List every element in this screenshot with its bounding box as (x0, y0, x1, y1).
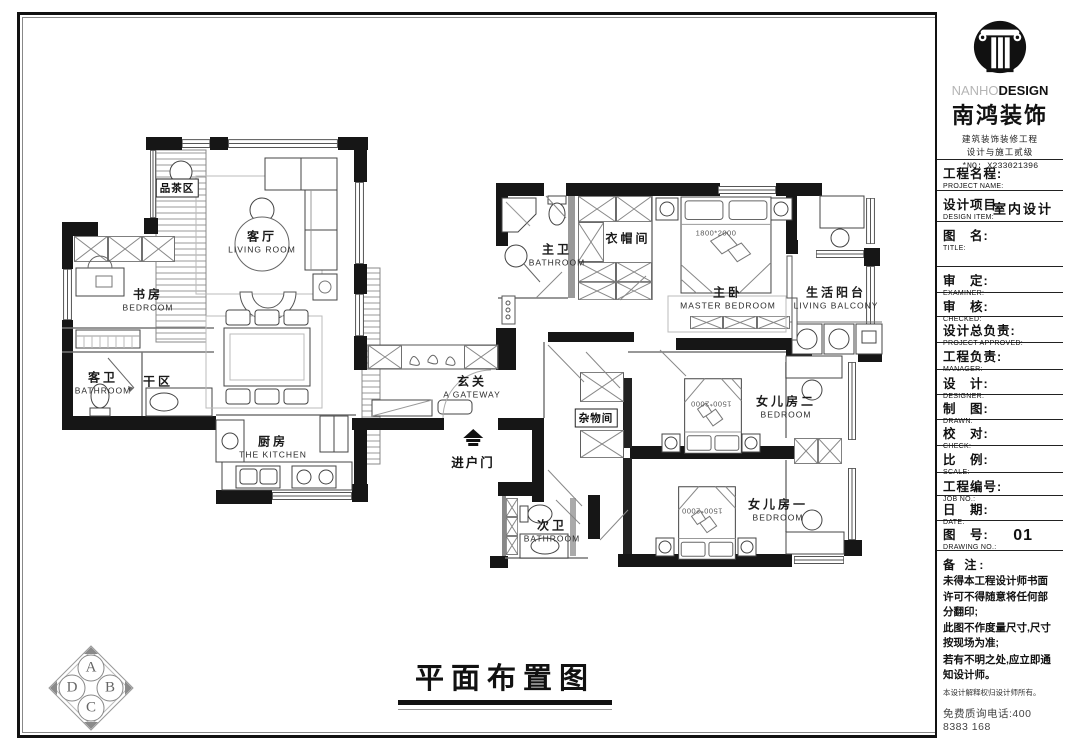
column-logo-icon (971, 18, 1029, 76)
room-label-master-bath: 主卫BATHROOM (529, 241, 585, 268)
drawing-sheet: { "sheet": { "drawing_title": "平面布置图", "… (0, 0, 1080, 756)
compass-letter-d: D (67, 680, 78, 697)
bed-size-label: 1500*2000 (691, 400, 732, 409)
entry-arrow-icon (462, 429, 484, 446)
room-label-girl-room-2: 女儿房二BEDROOM (756, 393, 816, 420)
entry-door-label: 进户门 (451, 452, 495, 471)
field-manager: 工程负责:MANAGER: (937, 343, 1063, 370)
room-label-storage: 杂物间 (575, 409, 618, 428)
room-label-guest-bath: 客卫BATHROOM (75, 369, 131, 396)
desk2 (786, 356, 842, 378)
compass-letter-c: C (86, 700, 96, 717)
drawing-title: 平面布置图 (398, 655, 612, 697)
room-label-girl-room-1: 女儿房一BEDROOM (748, 496, 808, 523)
field-check: 校 对:CHECK: (937, 420, 1063, 446)
field-job-no: 工程编号:JOB NO.: (937, 473, 1063, 496)
room-label-kitchen: 厨房THE KITCHEN (239, 433, 307, 460)
brand-en: NANHODESIGN (937, 83, 1063, 98)
dining-table (224, 310, 310, 404)
girl-bed-1 (679, 487, 736, 560)
utility-boxes (502, 296, 515, 324)
field-designer: 设 计:DESIGNER: (937, 370, 1063, 395)
nightstand (770, 198, 792, 220)
room-label-gateway: 玄关A GATEWAY (443, 373, 501, 400)
master-sink (505, 245, 527, 267)
washer-units (790, 322, 882, 354)
master-bed (681, 197, 771, 293)
field-project-approved: 设计总负责:PROJECT APPROVED: (937, 317, 1063, 343)
notes-disclaimer: 本设计解释权归设计师所有。 (943, 687, 1057, 698)
compass-letter-b: B (105, 680, 115, 697)
design-item-value: 室内设计 (993, 198, 1053, 217)
title-block: NANHODESIGN 南鸿装饰 建筑装饰装修工程设计与施工贰级 *NO: X2… (935, 12, 1063, 738)
entry-bench (372, 400, 472, 416)
room-label-tea-area: 品茶区 (156, 179, 199, 198)
desk-chair (831, 229, 849, 247)
field-examiner: 审 定:EXAMINER: (937, 267, 1063, 293)
notes-title: 备 注: (943, 556, 1057, 573)
master-toilet (548, 196, 566, 225)
field-design-item: 设计项目:DESIGN ITEM: 室内设计 (937, 191, 1063, 222)
bed-size-label: 1500*2000 (682, 507, 723, 516)
room-label-master-bedroom: 主卧MASTER BEDROOM (680, 284, 776, 311)
compass-graphic (38, 638, 144, 738)
room-label-study: 书房BEDROOM (123, 286, 174, 313)
notes-block: 备 注: 未得本工程设计师书面许可不得随意将任何部分翻印; 此图不作度量尺寸,尺… (937, 551, 1063, 738)
room-label-cloakroom: 衣帽间 (605, 230, 650, 247)
fridge (320, 416, 348, 452)
room-label-second-bath: 次卫BATHROOM (524, 517, 580, 544)
title-underline-thin (398, 709, 612, 710)
window-desk (820, 196, 864, 228)
study-cabinet (76, 330, 140, 348)
field-drawn: 制 图:DRAWN: (937, 395, 1063, 420)
corner-table (313, 274, 337, 300)
note-line: 若有不明之处,应立即通知设计师。 (943, 653, 1057, 683)
field-checked: 审 核:CHECKED: (937, 293, 1063, 317)
room-label-balcony: 生活阳台LIVING BALCONY (794, 284, 879, 311)
field-date: 日 期:DATE: (937, 496, 1063, 521)
note-line: 此图不作度量尺寸,尺寸按现场为准; (943, 621, 1057, 651)
note-line: 未得本工程设计师书面许可不得随意将任何部分翻印; (943, 574, 1057, 620)
field-title: 图 名:TITLE: (937, 222, 1063, 267)
room-label-living: 客厅LIVING ROOM (228, 228, 296, 255)
title-underline-bar (398, 700, 612, 705)
room-label-dry-area: 干区 (143, 373, 173, 390)
brand-cert: 建筑装饰装修工程设计与施工贰级 (937, 133, 1063, 159)
brand-cn: 南鸿装饰 (937, 98, 1063, 130)
nightstand (656, 198, 678, 220)
girl-bed-2 (685, 379, 742, 453)
field-drawing-no: 图 号:DRAWING NO.: 01 (937, 521, 1063, 551)
desk1 (786, 532, 844, 554)
hotline: 免费质询电话:400 8383 168 (943, 706, 1057, 733)
field-project-name: 工程名程:PROJECT NAME: (937, 160, 1063, 191)
dry-area-sink (146, 388, 212, 416)
bed-size-label: 1800*2000 (696, 229, 737, 238)
compass-letter-a: A (86, 660, 97, 677)
drawing-number-value: 01 (1013, 527, 1033, 545)
field-scale: 比 例:SCALE: (937, 446, 1063, 473)
direction-compass: A B C D (38, 638, 144, 738)
entry-door-marker: 进户门 (451, 429, 495, 471)
logo-block: NANHODESIGN 南鸿装饰 建筑装饰装修工程设计与施工贰级 *NO: X2… (937, 12, 1063, 160)
